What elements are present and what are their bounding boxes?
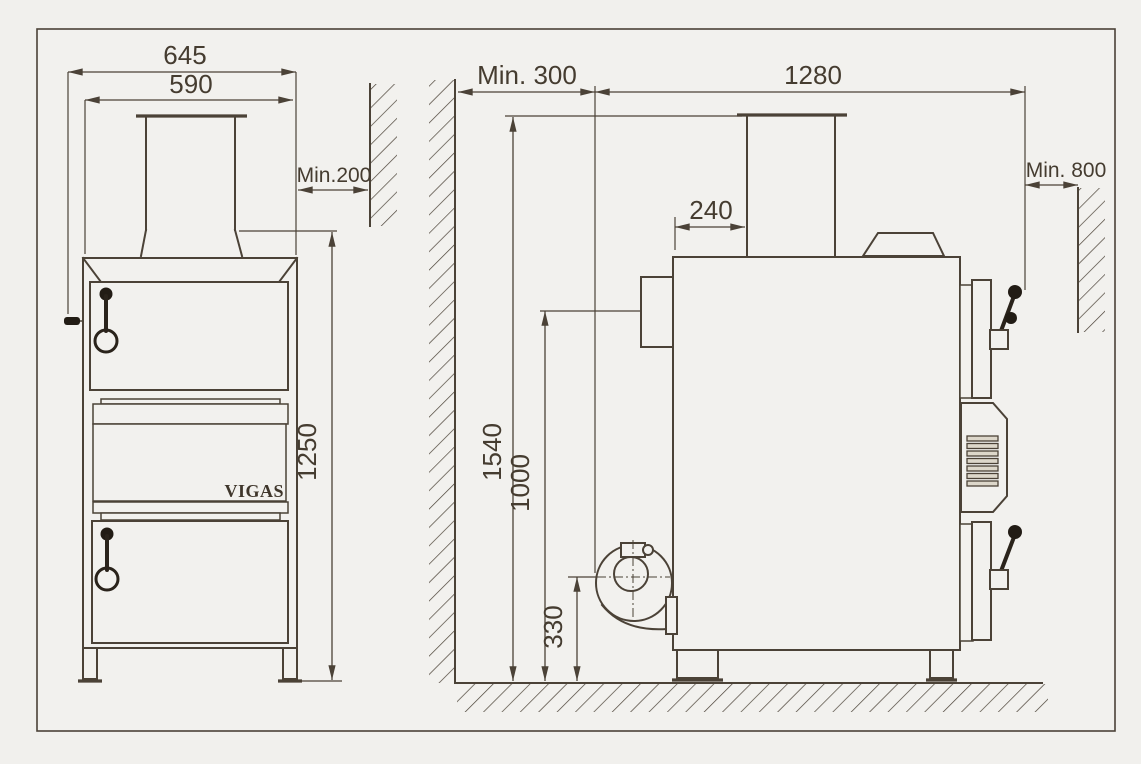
middle-band-lower	[93, 502, 288, 513]
dim-label-overall-depth: 1280	[784, 60, 842, 90]
front-wall-hatch	[429, 80, 455, 683]
trim-strip-lower	[101, 513, 280, 520]
rear-wall-hatch	[1078, 188, 1105, 332]
dim-label-side-clearance: Min.200	[297, 164, 372, 187]
fan-motor-cap	[643, 545, 653, 555]
middle-band-upper	[93, 404, 288, 424]
dim-label-body-width: 590	[169, 69, 212, 99]
side-wall-hatch	[370, 84, 397, 226]
floor-hatch	[455, 683, 1048, 712]
top-damper-flap	[863, 233, 944, 256]
dim-label-front-clearance: Min. 300	[477, 60, 577, 90]
upper-door-side	[972, 280, 991, 398]
dim-label-body-height: 1250	[292, 423, 322, 481]
lower-door-front	[92, 521, 288, 643]
dim-label-fan-height: 330	[538, 605, 568, 648]
dim-label-flue-height: 1000	[505, 454, 535, 512]
fan-flange	[666, 597, 677, 634]
dim-label-overall-width: 645	[163, 40, 206, 70]
brand-logo: VIGAS	[224, 481, 284, 501]
vent-panel	[961, 403, 1007, 512]
fan-hub	[614, 557, 648, 591]
lower-door-side	[972, 522, 991, 640]
dim-label-chimney-setback: 240	[689, 195, 732, 225]
rear-flue-outlet	[641, 277, 673, 347]
dim-label-chimney-height: 1540	[477, 423, 507, 481]
upper-door-front	[90, 282, 288, 390]
boiler-body-side	[673, 257, 960, 650]
boiler-dimension-diagram: VIGAS	[0, 0, 1141, 764]
dim-label-rear-clearance: Min. 800	[1026, 159, 1107, 182]
